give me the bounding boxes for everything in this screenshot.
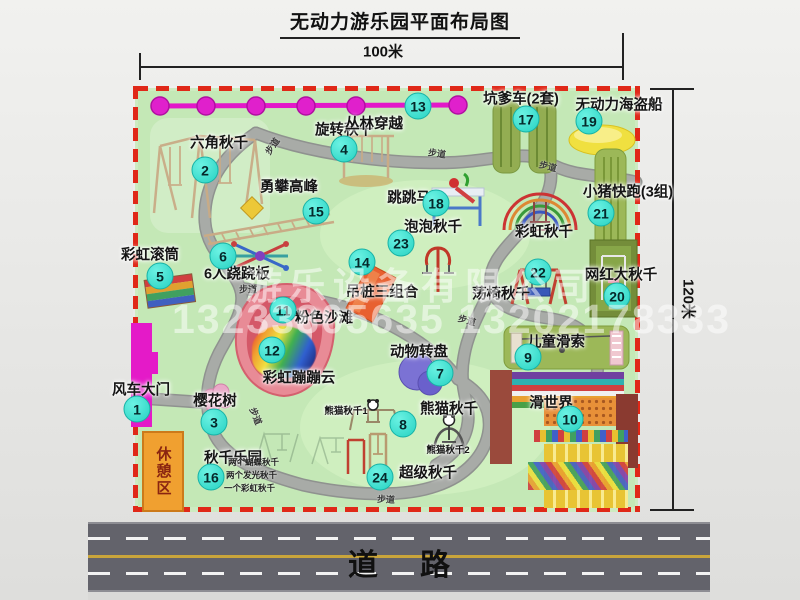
footpath-label-2: 步道 — [427, 145, 447, 160]
attraction-label-3: 樱花树 — [193, 390, 237, 411]
attraction-badge-23: 23 — [388, 230, 415, 257]
attraction-badge-4: 4 — [331, 136, 358, 163]
attraction-badge-14: 14 — [349, 249, 376, 276]
attraction-sublabel-16-3: 一个彩虹秋千 — [224, 482, 275, 494]
attraction-sublabel-16-2: 两个发光秋千 — [226, 469, 277, 481]
attraction-badge-3: 3 — [201, 409, 228, 436]
attraction-label-12: 彩虹蹦蹦云 — [263, 367, 336, 388]
park-border-left — [133, 86, 138, 512]
attraction-label-2: 六角秋千 — [190, 132, 248, 153]
attraction-badge-17: 17 — [513, 106, 540, 133]
slide-world-icon — [488, 366, 640, 512]
attraction-badge-16: 16 — [198, 464, 225, 491]
attraction-badge-15: 15 — [303, 198, 330, 225]
attraction-badge-24: 24 — [367, 464, 394, 491]
attraction-label-11: 粉色沙滩 — [295, 307, 353, 328]
footpath-label-4: 步道 — [239, 283, 257, 296]
map-label-panda-swing-1: 熊猫秋千1 — [324, 403, 367, 417]
attraction-label-8: 熊猫秋千 — [420, 398, 478, 419]
map-label-panda-swing-2: 熊猫秋千2 — [426, 442, 469, 456]
attraction-label-20: 网红大秋千 — [585, 264, 658, 285]
attraction-label-7: 动物转盘 — [390, 341, 448, 362]
attraction-badge-20: 20 — [604, 283, 631, 310]
attraction-label-14: 吊桩三组合 — [346, 281, 419, 302]
park-border-top — [135, 86, 638, 91]
attraction-badge-11: 11 — [270, 297, 297, 324]
bubble-swing-icon — [416, 240, 460, 298]
attraction-badge-19: 19 — [576, 108, 603, 135]
rest-area-label: 休憩区 — [153, 446, 174, 497]
attraction-badge-1: 1 — [124, 396, 151, 423]
attraction-badge-12: 12 — [259, 337, 286, 364]
attraction-label-21: 小猪快跑(3组) — [583, 181, 673, 202]
map-label-rainbow-swing: 彩虹秋千 — [515, 221, 573, 242]
attraction-label-15: 勇攀高峰 — [260, 176, 318, 197]
attraction-badge-5: 5 — [147, 263, 174, 290]
attraction-badge-2: 2 — [192, 157, 219, 184]
attraction-badge-10: 10 — [557, 406, 584, 433]
park-plan-image: 无动力游乐园平面布局图 100米 120米 — [0, 0, 800, 600]
attraction-badge-18: 18 — [423, 190, 450, 217]
footpath-label-7: 步道 — [377, 492, 396, 506]
attraction-badge-8: 8 — [390, 411, 417, 438]
page-title: 无动力游乐园平面布局图 — [0, 7, 800, 39]
attraction-label-23: 泡泡秋千 — [404, 216, 462, 237]
attraction-badge-7: 7 — [427, 360, 454, 387]
attraction-label-22: 荡椅秋千 — [472, 283, 530, 304]
attraction-sublabel-16-1: 两个蝴蝶秋千 — [228, 456, 279, 468]
attraction-badge-6: 6 — [210, 243, 237, 270]
attraction-badge-13: 13 — [405, 93, 432, 120]
windmill-gate-notch — [151, 352, 158, 374]
attraction-badge-22: 22 — [525, 259, 552, 286]
attraction-label-5: 彩虹滚筒 — [121, 244, 179, 265]
attraction-badge-21: 21 — [588, 200, 615, 227]
attraction-label-13: 丛林穿越 — [345, 113, 403, 134]
rest-area: 休憩区 — [142, 431, 184, 512]
attraction-label-24: 超级秋千 — [399, 462, 457, 483]
attraction-badge-9: 9 — [515, 344, 542, 371]
